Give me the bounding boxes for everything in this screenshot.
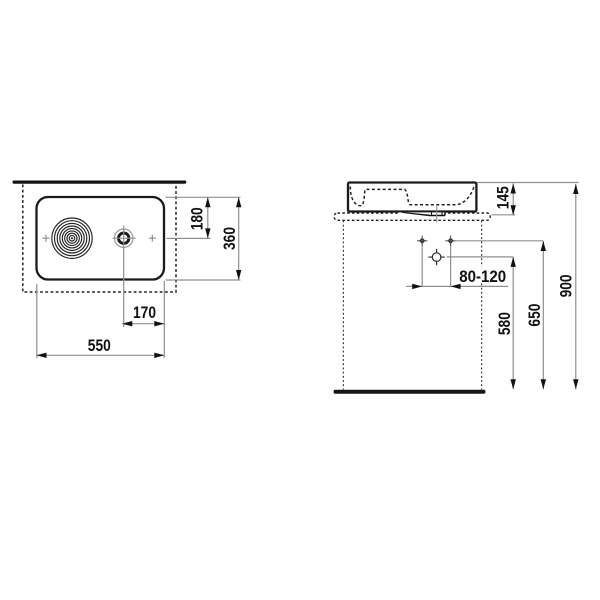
- svg-text:550: 550: [88, 337, 111, 355]
- svg-text:360: 360: [221, 227, 239, 250]
- svg-text:170: 170: [133, 304, 156, 322]
- svg-text:180: 180: [188, 207, 206, 230]
- svg-text:650: 650: [526, 304, 544, 327]
- svg-text:580: 580: [496, 312, 514, 335]
- svg-text:80-120: 80-120: [459, 268, 506, 286]
- svg-text:145: 145: [495, 186, 513, 209]
- svg-text:900: 900: [558, 274, 576, 297]
